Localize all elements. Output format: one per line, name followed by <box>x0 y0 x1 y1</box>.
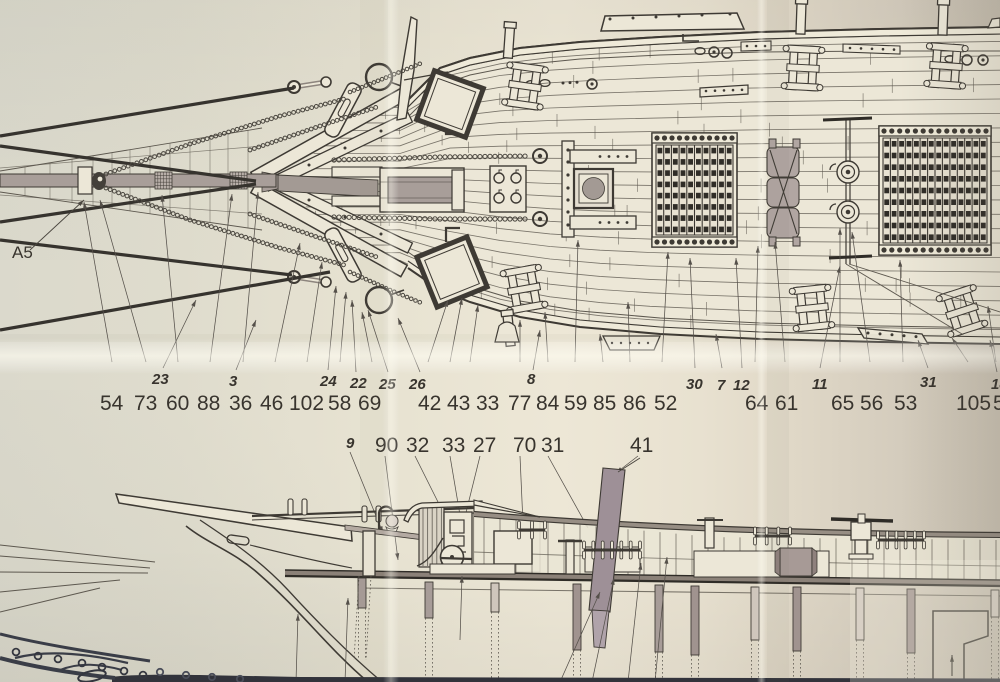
svg-text:84: 84 <box>536 392 560 415</box>
svg-text:60: 60 <box>166 392 189 415</box>
svg-text:12: 12 <box>733 377 750 394</box>
svg-text:73: 73 <box>134 392 157 415</box>
svg-text:3: 3 <box>229 373 238 390</box>
svg-text:70: 70 <box>513 434 536 457</box>
svg-text:9: 9 <box>346 435 355 452</box>
svg-text:58: 58 <box>328 392 351 415</box>
svg-text:33: 33 <box>442 434 465 457</box>
svg-text:32: 32 <box>406 434 429 457</box>
svg-text:30: 30 <box>686 376 703 393</box>
svg-text:77: 77 <box>508 392 531 415</box>
svg-text:43: 43 <box>447 392 470 415</box>
svg-text:86: 86 <box>623 392 646 415</box>
svg-text:7: 7 <box>717 377 726 394</box>
svg-text:56: 56 <box>860 392 883 415</box>
svg-text:11: 11 <box>812 376 828 393</box>
svg-text:24: 24 <box>319 373 337 390</box>
svg-text:46: 46 <box>260 392 283 415</box>
svg-text:52: 52 <box>654 392 677 415</box>
svg-text:26: 26 <box>408 376 426 393</box>
svg-text:41: 41 <box>630 434 653 457</box>
svg-text:65: 65 <box>831 392 854 415</box>
svg-text:85: 85 <box>593 392 616 415</box>
svg-text:33: 33 <box>476 392 499 415</box>
svg-text:54: 54 <box>100 392 124 415</box>
svg-text:A5: A5 <box>12 243 33 262</box>
svg-text:31: 31 <box>541 434 564 457</box>
svg-text:42: 42 <box>418 392 441 415</box>
svg-text:27: 27 <box>473 434 496 457</box>
svg-text:88: 88 <box>197 392 220 415</box>
svg-text:102: 102 <box>289 392 324 415</box>
svg-text:59: 59 <box>564 392 587 415</box>
svg-text:36: 36 <box>229 392 252 415</box>
